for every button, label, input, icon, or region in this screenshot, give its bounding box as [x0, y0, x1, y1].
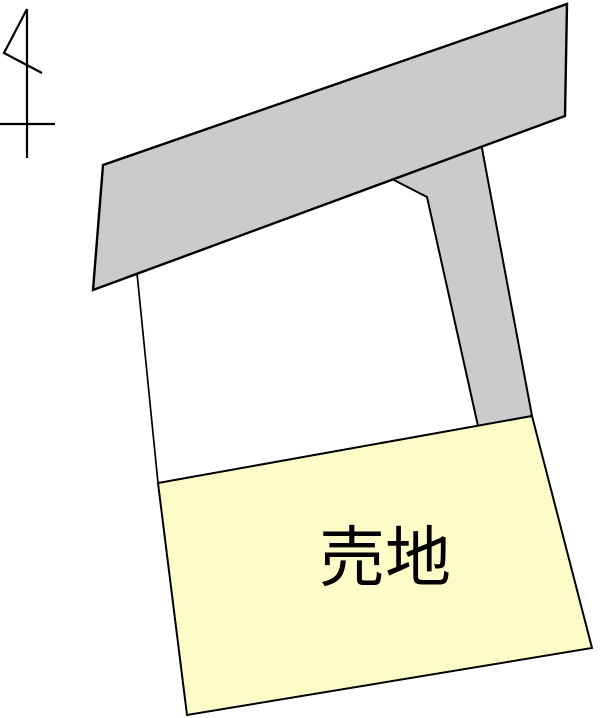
map-canvas: 売地	[0, 0, 600, 718]
road-side	[392, 143, 532, 426]
north-arrow-icon	[0, 9, 55, 158]
parcel-boundary-line	[137, 273, 158, 483]
land-plot-map: 売地	[0, 0, 600, 718]
parcel-label: 売地	[319, 520, 451, 597]
